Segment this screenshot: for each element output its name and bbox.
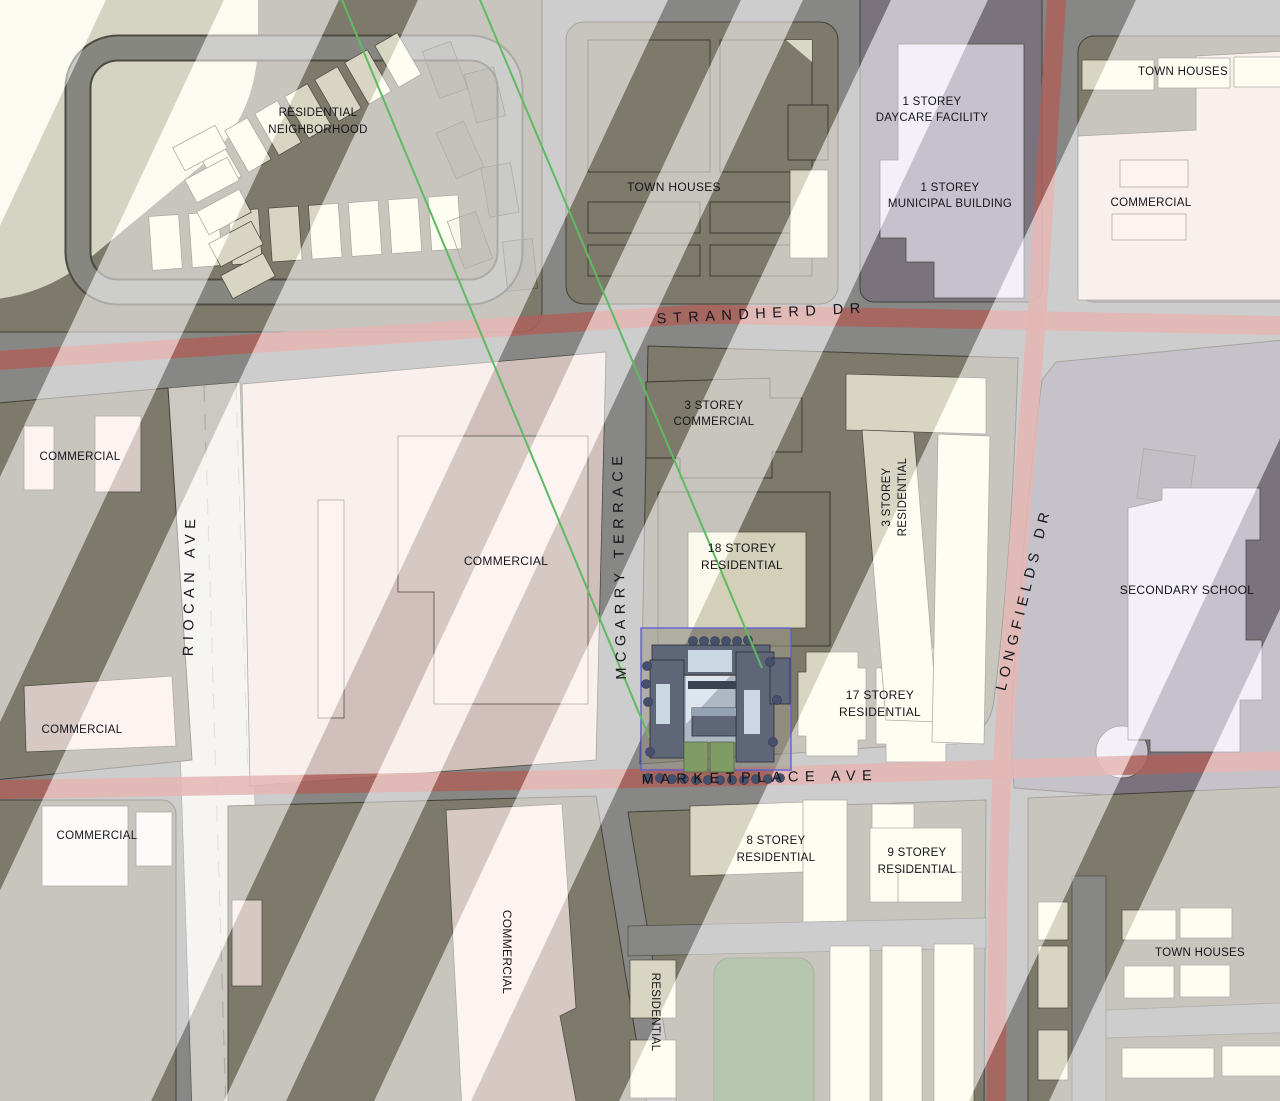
site-courtyard-west xyxy=(684,742,708,772)
label-riocan-ave: RIOCAN AVE xyxy=(181,514,199,657)
label-residential-south: RESIDENTIAL xyxy=(649,973,661,1052)
label-3storey-res-1: 3 STOREY xyxy=(881,467,893,526)
label-commercial-sw: COMMERCIAL xyxy=(57,830,138,842)
label-18storey-1: 18 STOREY xyxy=(708,541,777,555)
site-courtyard-east xyxy=(710,742,734,772)
label-17storey-1: 17 STOREY xyxy=(846,688,915,702)
label-daycare-1: 1 STOREY xyxy=(902,96,961,108)
label-commercial-south: COMMERCIAL xyxy=(500,910,514,994)
label-town-houses-top: TOWN HOUSES xyxy=(627,180,721,194)
label-commercial-w2: COMMERCIAL xyxy=(42,724,123,736)
label-3storey-commercial-2: COMMERCIAL xyxy=(674,416,755,428)
site-plan-map: RESIDENTIAL NEIGHBORHOOD TOWN HOUSES 1 S… xyxy=(0,0,1280,1101)
label-18storey-2: RESIDENTIAL xyxy=(701,558,783,572)
label-residential-neighborhood-2: NEIGHBORHOOD xyxy=(268,124,367,136)
label-municipal-1: 1 STOREY xyxy=(920,182,979,194)
label-9storey-1: 9 STOREY xyxy=(887,847,946,859)
label-secondary-school: SECONDARY SCHOOL xyxy=(1120,583,1254,597)
label-municipal-2: MUNICIPAL BUILDING xyxy=(888,198,1012,210)
label-3storey-commercial-1: 3 STOREY xyxy=(684,400,743,412)
label-3storey-res-2: RESIDENTIAL xyxy=(897,457,909,536)
map-canvas: RESIDENTIAL NEIGHBORHOOD TOWN HOUSES 1 S… xyxy=(0,0,1280,1101)
label-commercial-center: COMMERCIAL xyxy=(464,554,548,568)
label-town-houses-se: TOWN HOUSES xyxy=(1155,947,1245,959)
label-residential-neighborhood-1: RESIDENTIAL xyxy=(279,107,358,119)
label-town-houses-ne: TOWN HOUSES xyxy=(1138,66,1228,78)
label-commercial-w1: COMMERCIAL xyxy=(40,451,121,463)
label-17storey-2: RESIDENTIAL xyxy=(839,705,921,719)
label-8storey-1: 8 STOREY xyxy=(746,835,805,847)
label-commercial-ne: COMMERCIAL xyxy=(1111,197,1192,209)
label-9storey-2: RESIDENTIAL xyxy=(878,864,957,876)
label-8storey-2: RESIDENTIAL xyxy=(737,852,816,864)
label-daycare-2: DAYCARE FACILITY xyxy=(876,112,989,124)
site-plan xyxy=(641,628,791,785)
